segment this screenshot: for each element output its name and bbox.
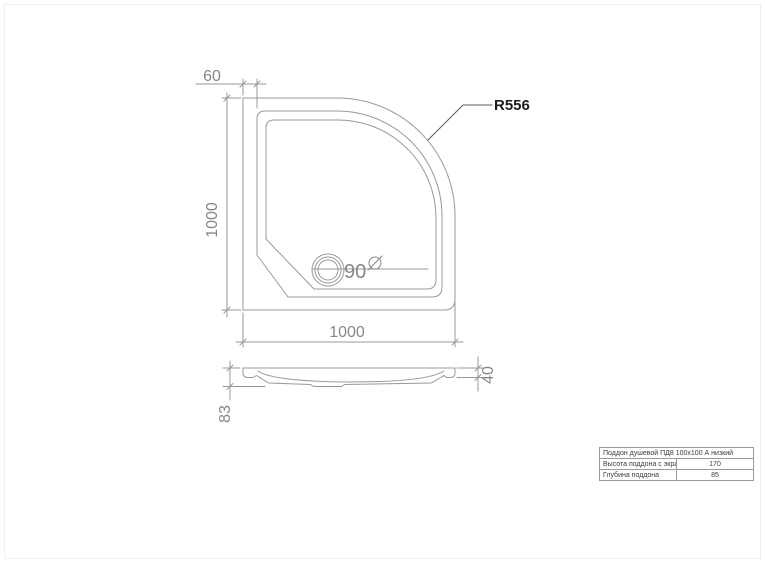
side-view [223, 357, 484, 400]
spec-row-value: 170 [677, 459, 754, 470]
spec-table-title: Поддон душевой ПД8 100х100 А низкий [600, 448, 754, 459]
radius-label: R556 [494, 97, 530, 114]
drawing-page: 60 1000 1000 90 R556 40 83 Поддон душево… [0, 0, 765, 563]
spec-table: Поддон душевой ПД8 100х100 А низкий Высо… [599, 447, 754, 481]
dim-1000-bottom-label: 1000 [329, 324, 365, 341]
spec-row-label: Высота поддона с экраном [600, 459, 677, 470]
dim-83 [223, 361, 265, 400]
drain-icon [312, 254, 428, 286]
radius-leader-line [428, 105, 492, 140]
dim-1000-left-label: 1000 [204, 202, 221, 238]
dim-60-label: 60 [203, 68, 221, 85]
side-basin-inner-line [258, 371, 444, 382]
spec-table-title-row: Поддон душевой ПД8 100х100 А низкий [600, 448, 754, 459]
dim-83-label: 83 [217, 405, 234, 423]
spec-table-row-height: Высота поддона с экраном 170 [600, 459, 754, 470]
spec-table-row-depth: Глубина поддона 85 [600, 470, 754, 481]
spec-row-label: Глубина поддона [600, 470, 677, 481]
dim-1000-left [222, 93, 241, 317]
top-view [196, 79, 492, 347]
diameter-icon [368, 256, 382, 270]
dim-40-label: 40 [480, 366, 497, 384]
spec-row-value: 85 [677, 470, 754, 481]
drain-diameter-label: 90 [344, 261, 366, 283]
